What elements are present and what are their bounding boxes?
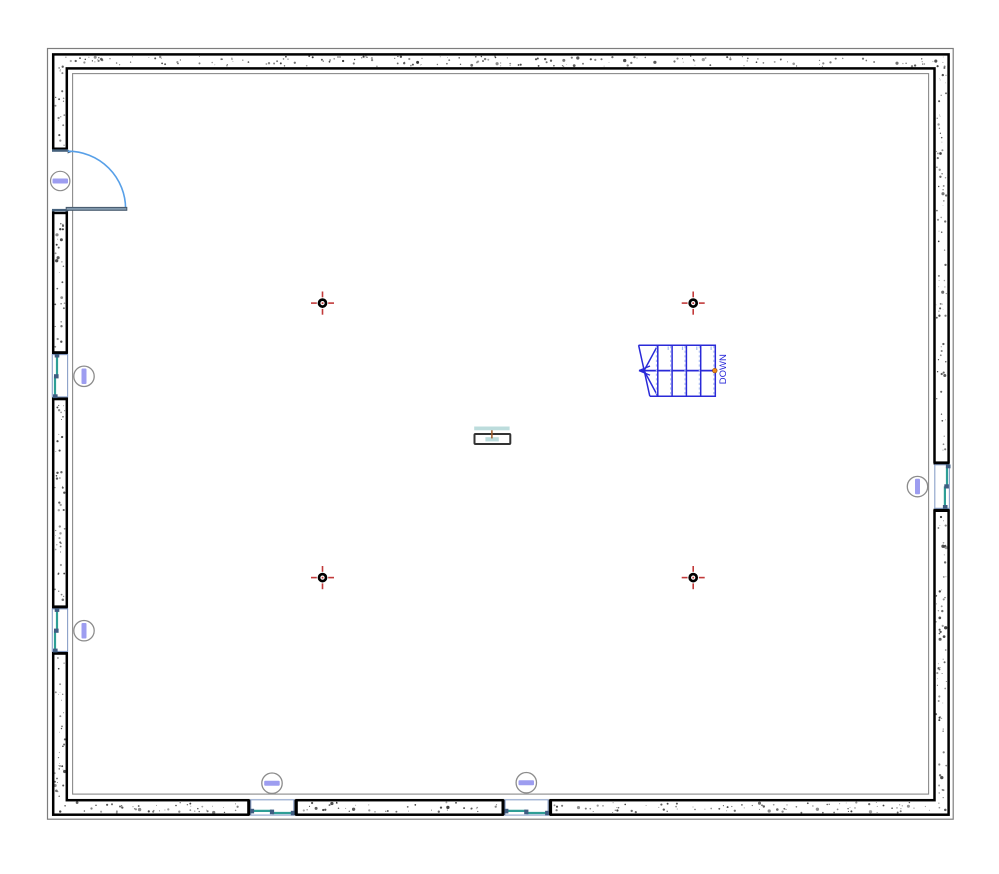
svg-text:DOWN: DOWN bbox=[718, 354, 729, 384]
